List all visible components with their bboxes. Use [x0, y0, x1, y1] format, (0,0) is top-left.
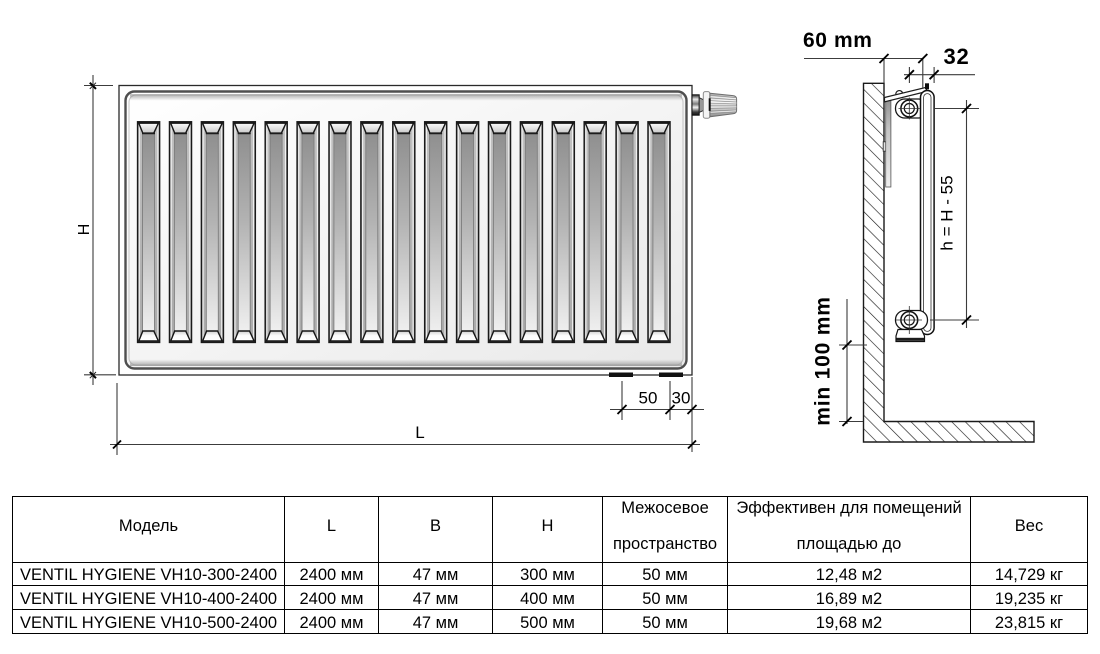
svg-text:32: 32	[944, 44, 970, 69]
svg-text:H: H	[76, 224, 93, 236]
svg-text:50: 50	[639, 389, 658, 408]
svg-text:60 mm: 60 mm	[803, 29, 873, 52]
svg-text:min 100 mm: min 100 mm	[812, 296, 835, 425]
svg-text:L: L	[415, 423, 424, 442]
svg-text:h = H - 55: h = H - 55	[938, 175, 957, 250]
svg-text:30: 30	[672, 389, 691, 408]
